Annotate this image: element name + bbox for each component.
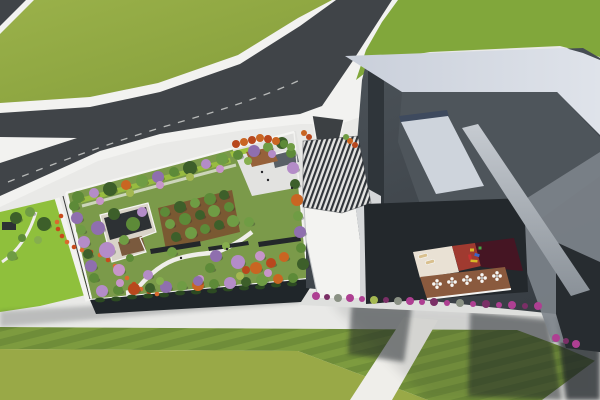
bush bbox=[444, 300, 450, 306]
chair bbox=[465, 275, 468, 278]
tree bbox=[244, 217, 254, 227]
tree bbox=[236, 272, 244, 280]
table bbox=[466, 279, 469, 282]
tree bbox=[99, 242, 115, 258]
bush bbox=[522, 303, 528, 309]
tree bbox=[224, 202, 234, 212]
table bbox=[436, 283, 439, 286]
table bbox=[496, 275, 499, 278]
chair bbox=[477, 276, 480, 279]
shrub bbox=[127, 295, 137, 300]
tree bbox=[78, 236, 90, 248]
tree bbox=[76, 225, 86, 235]
tree bbox=[195, 210, 205, 220]
tree bbox=[273, 274, 283, 284]
bush bbox=[334, 294, 342, 302]
tree bbox=[185, 227, 197, 239]
playground-equipment bbox=[470, 249, 474, 252]
tree bbox=[248, 145, 260, 157]
tree bbox=[7, 251, 17, 261]
person bbox=[261, 171, 263, 173]
tree bbox=[287, 143, 295, 151]
chair bbox=[435, 279, 438, 282]
tree bbox=[169, 167, 179, 177]
flower-cluster bbox=[56, 227, 61, 232]
table bbox=[451, 281, 454, 284]
bush bbox=[456, 299, 464, 307]
tree bbox=[108, 208, 120, 220]
chair bbox=[499, 274, 502, 277]
bush bbox=[370, 296, 378, 304]
tree bbox=[233, 150, 243, 160]
tree bbox=[119, 235, 129, 245]
chair bbox=[465, 282, 468, 285]
tree bbox=[126, 189, 134, 197]
bush bbox=[346, 294, 354, 302]
flower-cluster bbox=[72, 245, 77, 250]
tree bbox=[165, 219, 175, 229]
tree bbox=[287, 162, 299, 174]
shrub bbox=[159, 293, 169, 298]
tree bbox=[126, 254, 134, 262]
tree bbox=[96, 197, 104, 205]
person bbox=[267, 179, 269, 181]
chair bbox=[447, 280, 450, 283]
chair bbox=[454, 280, 457, 283]
courtyard-terrace bbox=[364, 198, 528, 304]
tree bbox=[34, 236, 42, 244]
chair bbox=[480, 273, 483, 276]
tree bbox=[177, 281, 187, 291]
tree bbox=[231, 255, 245, 269]
tree bbox=[209, 279, 219, 289]
playground-equipment bbox=[479, 247, 482, 250]
tree bbox=[208, 205, 220, 217]
tree bbox=[156, 277, 164, 285]
tree bbox=[171, 232, 181, 242]
chair bbox=[484, 276, 487, 279]
tree bbox=[293, 211, 303, 221]
chair bbox=[435, 286, 438, 289]
tree bbox=[266, 258, 276, 268]
bush bbox=[508, 301, 516, 309]
tree bbox=[279, 252, 289, 262]
bush bbox=[324, 294, 330, 300]
tree bbox=[89, 188, 99, 198]
render-canvas bbox=[0, 0, 600, 400]
tree bbox=[91, 221, 105, 235]
tree bbox=[255, 251, 265, 261]
flower-cluster bbox=[155, 292, 160, 297]
tree bbox=[136, 175, 148, 187]
flower-cluster bbox=[65, 240, 70, 245]
tree bbox=[352, 142, 358, 148]
tree bbox=[216, 165, 224, 173]
tree bbox=[190, 198, 200, 208]
tree bbox=[256, 134, 264, 142]
tree bbox=[244, 157, 252, 165]
tree bbox=[280, 140, 288, 148]
person bbox=[180, 257, 182, 259]
tree bbox=[83, 249, 93, 259]
bush bbox=[470, 301, 476, 307]
tree bbox=[219, 190, 229, 200]
tree bbox=[294, 226, 306, 238]
shrub bbox=[111, 297, 121, 302]
chair bbox=[450, 277, 453, 280]
tree bbox=[264, 135, 272, 143]
bush bbox=[394, 297, 402, 305]
aerial-architectural-render bbox=[0, 0, 600, 400]
flower-cluster bbox=[55, 220, 60, 225]
person bbox=[226, 248, 228, 250]
tree bbox=[240, 138, 248, 146]
tree bbox=[268, 150, 276, 158]
tree bbox=[250, 262, 262, 274]
tree bbox=[69, 201, 79, 211]
bush bbox=[312, 292, 320, 300]
person bbox=[291, 187, 293, 189]
tree bbox=[227, 215, 239, 227]
tree bbox=[248, 136, 256, 144]
tree bbox=[297, 258, 309, 270]
tree bbox=[156, 181, 164, 189]
tree bbox=[113, 264, 125, 276]
bush bbox=[482, 300, 490, 308]
tree bbox=[272, 137, 280, 145]
bush bbox=[534, 302, 542, 310]
tree bbox=[85, 260, 97, 272]
tree bbox=[152, 171, 164, 183]
chair bbox=[439, 282, 442, 285]
tree bbox=[128, 283, 140, 295]
tree bbox=[301, 130, 307, 136]
shrub bbox=[143, 294, 153, 299]
tree bbox=[121, 180, 131, 190]
bush bbox=[430, 298, 438, 306]
bush bbox=[406, 297, 414, 305]
tree bbox=[200, 224, 210, 234]
tree bbox=[232, 140, 240, 148]
shrub bbox=[175, 291, 185, 296]
tree bbox=[205, 263, 215, 273]
tree bbox=[145, 283, 155, 293]
chair bbox=[450, 284, 453, 287]
tree bbox=[210, 250, 222, 262]
tree bbox=[183, 161, 197, 175]
tree bbox=[10, 212, 22, 224]
table bbox=[481, 277, 484, 280]
tree bbox=[37, 217, 51, 231]
tree bbox=[89, 273, 99, 283]
chair bbox=[495, 278, 498, 281]
tree bbox=[224, 277, 236, 289]
chair bbox=[432, 282, 435, 285]
tree bbox=[306, 134, 312, 140]
tree bbox=[201, 159, 211, 169]
tree bbox=[288, 273, 298, 283]
bush bbox=[572, 340, 580, 348]
tree bbox=[216, 153, 228, 165]
bush bbox=[383, 297, 389, 303]
bush bbox=[563, 338, 569, 344]
tree bbox=[242, 266, 250, 274]
bush bbox=[419, 299, 425, 305]
tree bbox=[25, 207, 35, 217]
tree bbox=[103, 182, 117, 196]
chair bbox=[462, 278, 465, 281]
tree bbox=[18, 234, 26, 242]
shrub bbox=[207, 289, 217, 294]
tree bbox=[160, 207, 170, 217]
chair bbox=[492, 274, 495, 277]
flower-cluster bbox=[60, 234, 65, 239]
flower-cluster bbox=[59, 214, 64, 219]
chair bbox=[469, 278, 472, 281]
tree bbox=[137, 207, 147, 217]
tree bbox=[143, 270, 153, 280]
tree bbox=[193, 276, 203, 286]
flower-cluster bbox=[125, 276, 130, 281]
tree bbox=[71, 212, 83, 224]
bush bbox=[359, 296, 365, 302]
tree bbox=[214, 220, 224, 230]
tree bbox=[179, 213, 191, 225]
tree bbox=[296, 243, 306, 253]
flower-cluster bbox=[106, 258, 111, 263]
tree bbox=[186, 173, 194, 181]
tree bbox=[96, 285, 108, 297]
chair bbox=[495, 271, 498, 274]
tree bbox=[126, 217, 140, 231]
tree bbox=[174, 201, 186, 213]
tree bbox=[264, 269, 272, 277]
shrub bbox=[95, 298, 105, 303]
bush bbox=[552, 334, 560, 342]
tree bbox=[167, 247, 177, 257]
tree bbox=[291, 194, 303, 206]
tree bbox=[116, 279, 124, 287]
tree bbox=[204, 193, 216, 205]
chair bbox=[480, 280, 483, 283]
tree bbox=[343, 134, 349, 140]
bush bbox=[496, 302, 502, 308]
